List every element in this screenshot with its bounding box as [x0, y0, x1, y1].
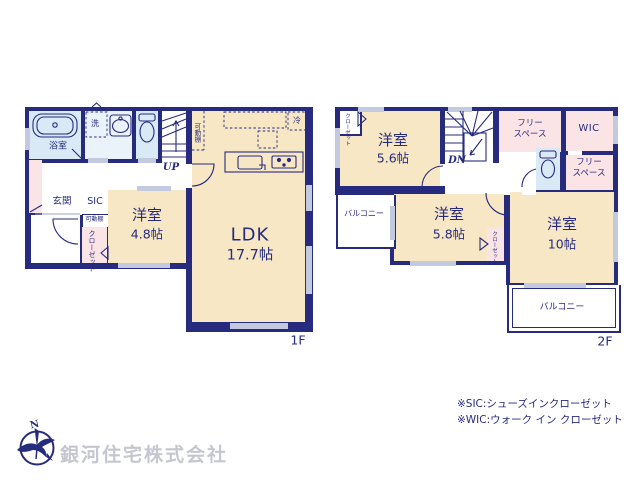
legend-block: ※SIC:シューズインクローゼット ※WIC:ウォーク イン クローゼット — [457, 397, 623, 428]
legend-wic: ※WIC:ウォーク イン クローゼット — [457, 413, 623, 429]
door-arcs-1f — [30, 149, 214, 244]
laundry-outline — [86, 103, 107, 137]
compass-bird-icon: N — [13, 417, 61, 469]
floorplan-canvas: 浴室 洗 可動棚 UP 玄関 SIC 可動棚 クローゼット 洋室 4.8帖 LD… — [0, 0, 640, 480]
shelf-dashes-1f — [192, 111, 204, 150]
stairs-1f — [162, 113, 186, 157]
company-name: 銀河住宅株式会社 — [60, 440, 228, 467]
svg-text:N: N — [29, 419, 41, 432]
washbasin-icon — [110, 115, 131, 136]
kitchen-counter-icon — [225, 152, 303, 172]
legend-sic: ※SIC:シューズインクローゼット — [457, 397, 623, 413]
bathtub-icon — [33, 114, 77, 137]
stairs-2f — [445, 111, 493, 163]
company-logo: N — [13, 417, 61, 469]
toilet-1f-icon — [139, 114, 155, 142]
toilet-2f-icon — [540, 151, 556, 178]
fridge-cupboard-outline — [224, 112, 307, 148]
